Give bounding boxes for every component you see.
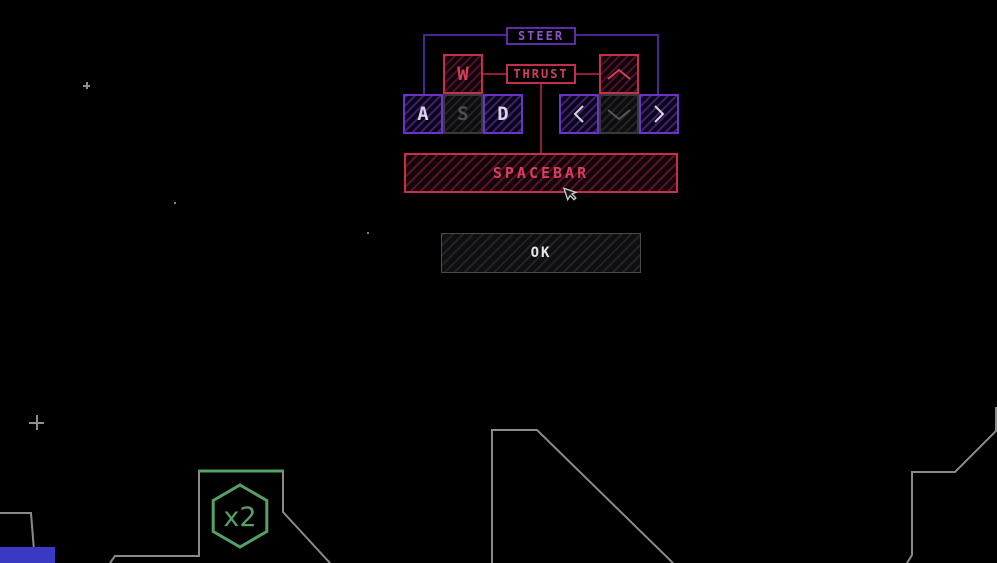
terrain: x2 (0, 0, 997, 563)
multiplier-badge: x2 (223, 502, 256, 533)
terrain-segment-pad-right (283, 471, 330, 563)
terrain-segment-pad-left (110, 471, 199, 563)
game-screen: STEER THRUST W A S D SPACEBAR (0, 0, 997, 563)
fuel-bar (0, 547, 55, 563)
terrain-segment-middle-peak (492, 430, 673, 563)
terrain-segment-right (907, 407, 996, 563)
